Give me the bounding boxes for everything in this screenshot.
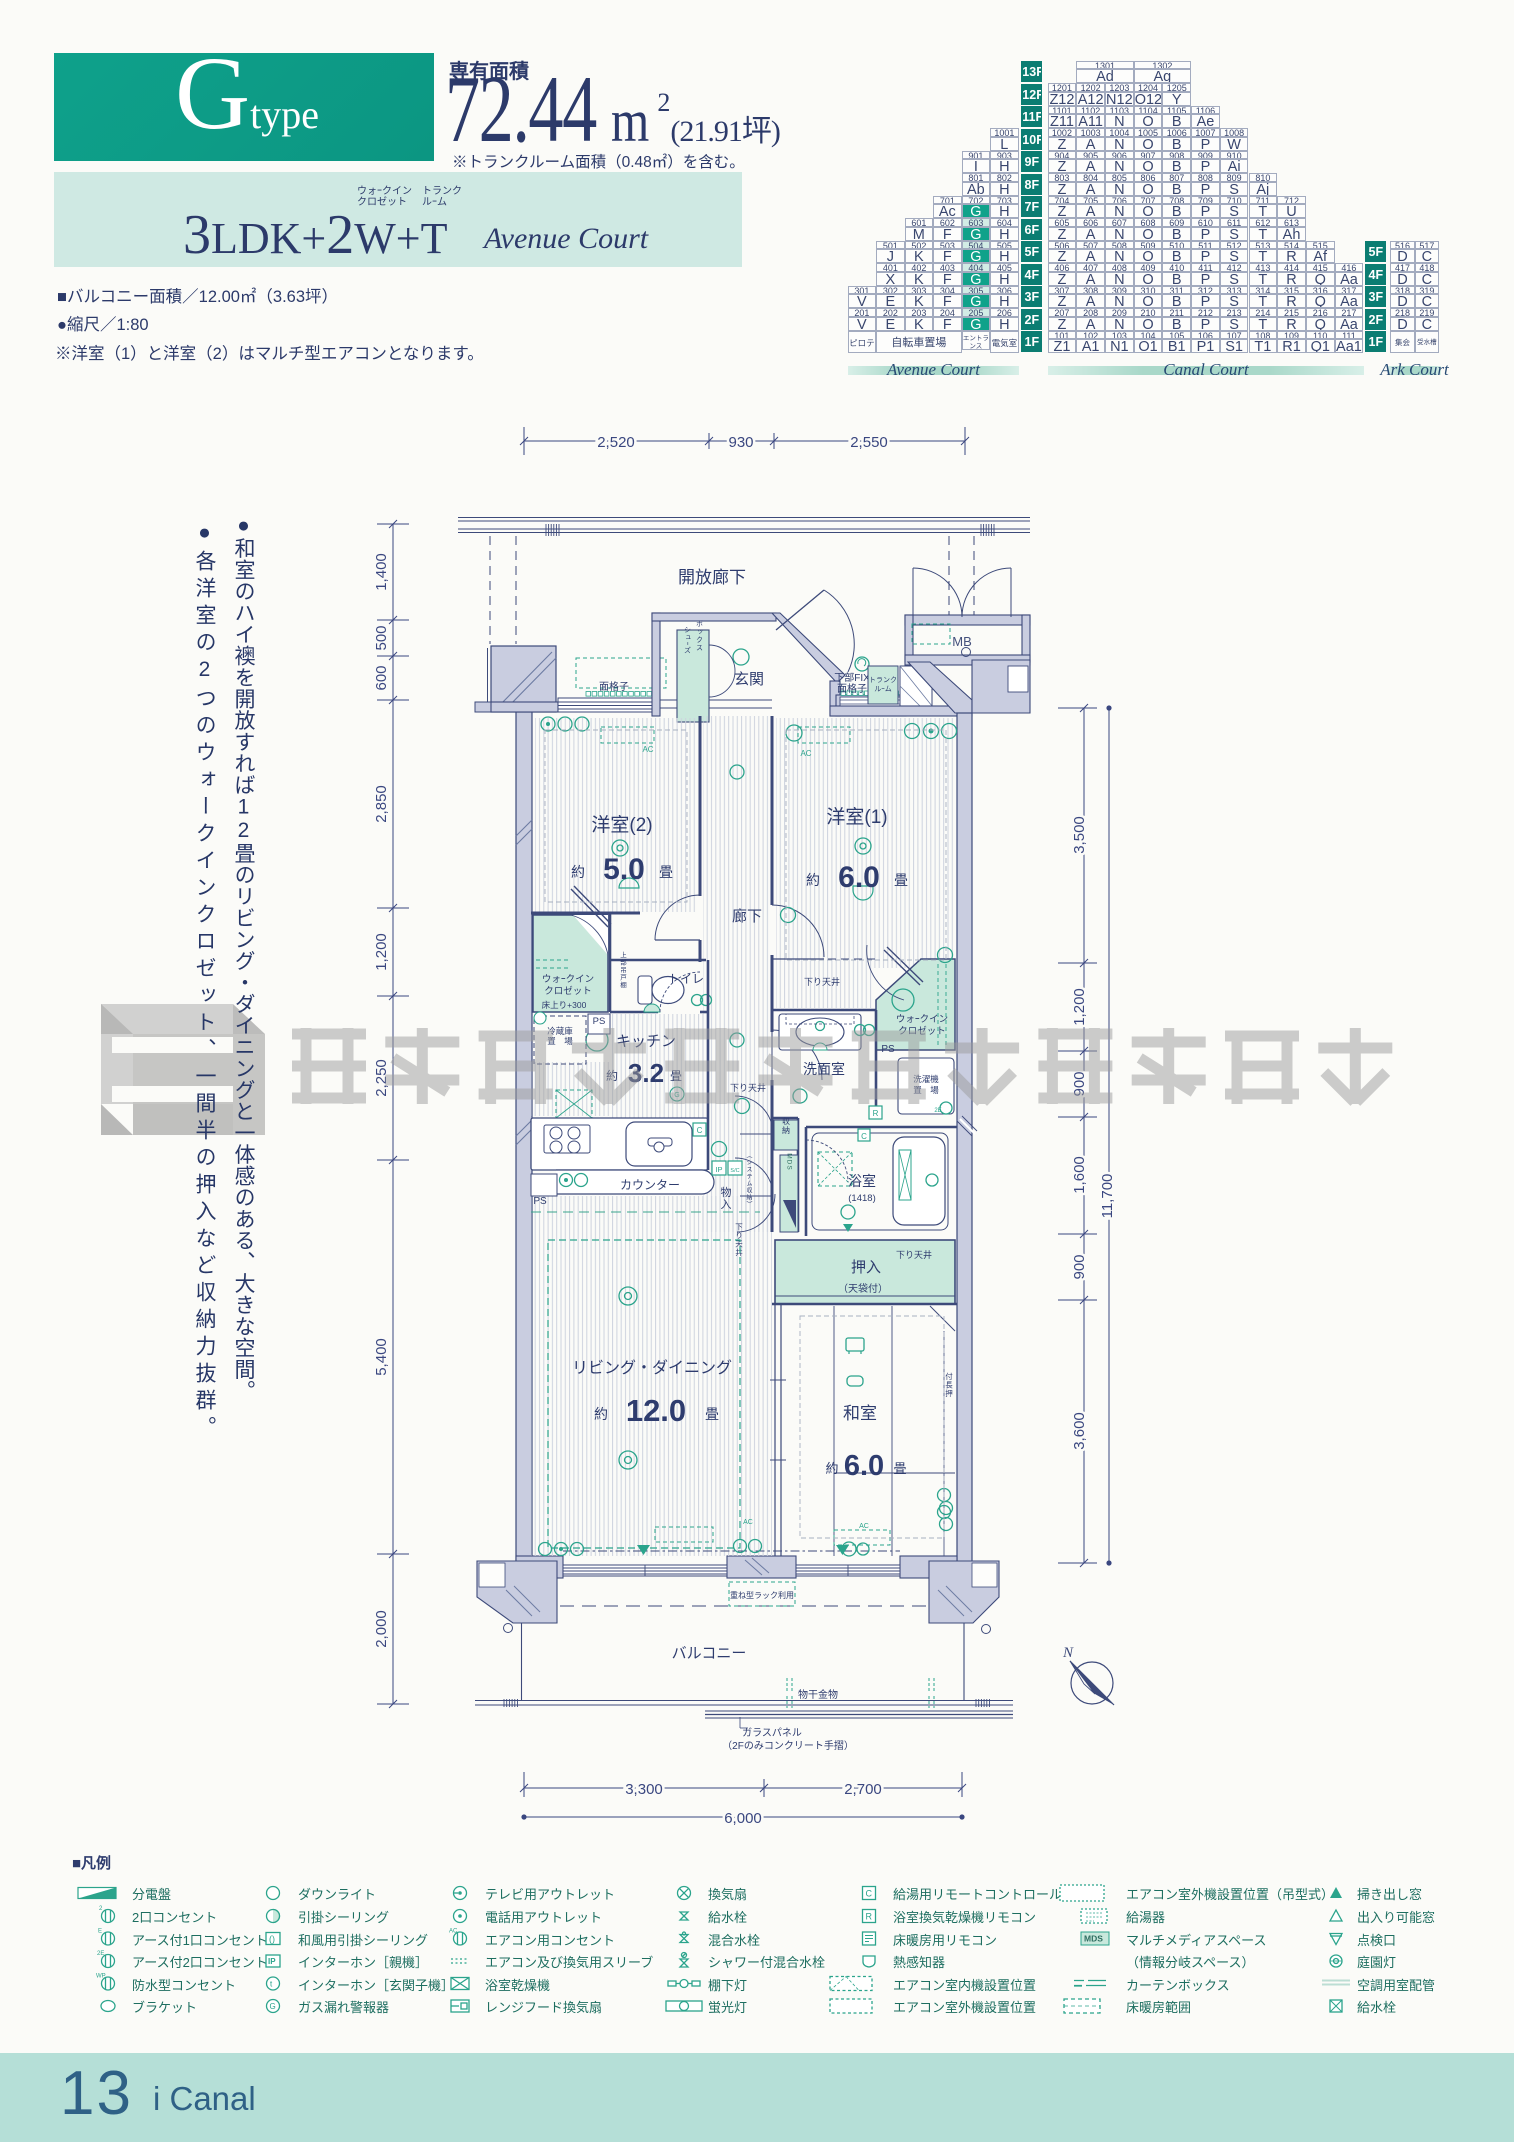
svg-text:IP: IP	[268, 1957, 276, 1966]
svg-text:WP: WP	[96, 1974, 106, 1980]
svg-text:C: C	[866, 1889, 873, 1899]
svg-text:G: G	[270, 2002, 276, 2011]
svg-text:AC: AC	[449, 1929, 458, 1935]
svg-text:E: E	[98, 1929, 102, 1935]
svg-text:2: 2	[99, 1906, 103, 1912]
svg-text:2E: 2E	[97, 1951, 104, 1957]
svg-text:(): ()	[269, 1934, 275, 1944]
svg-text:MDS: MDS	[1084, 1934, 1103, 1944]
svg-text:R: R	[866, 1912, 873, 1922]
